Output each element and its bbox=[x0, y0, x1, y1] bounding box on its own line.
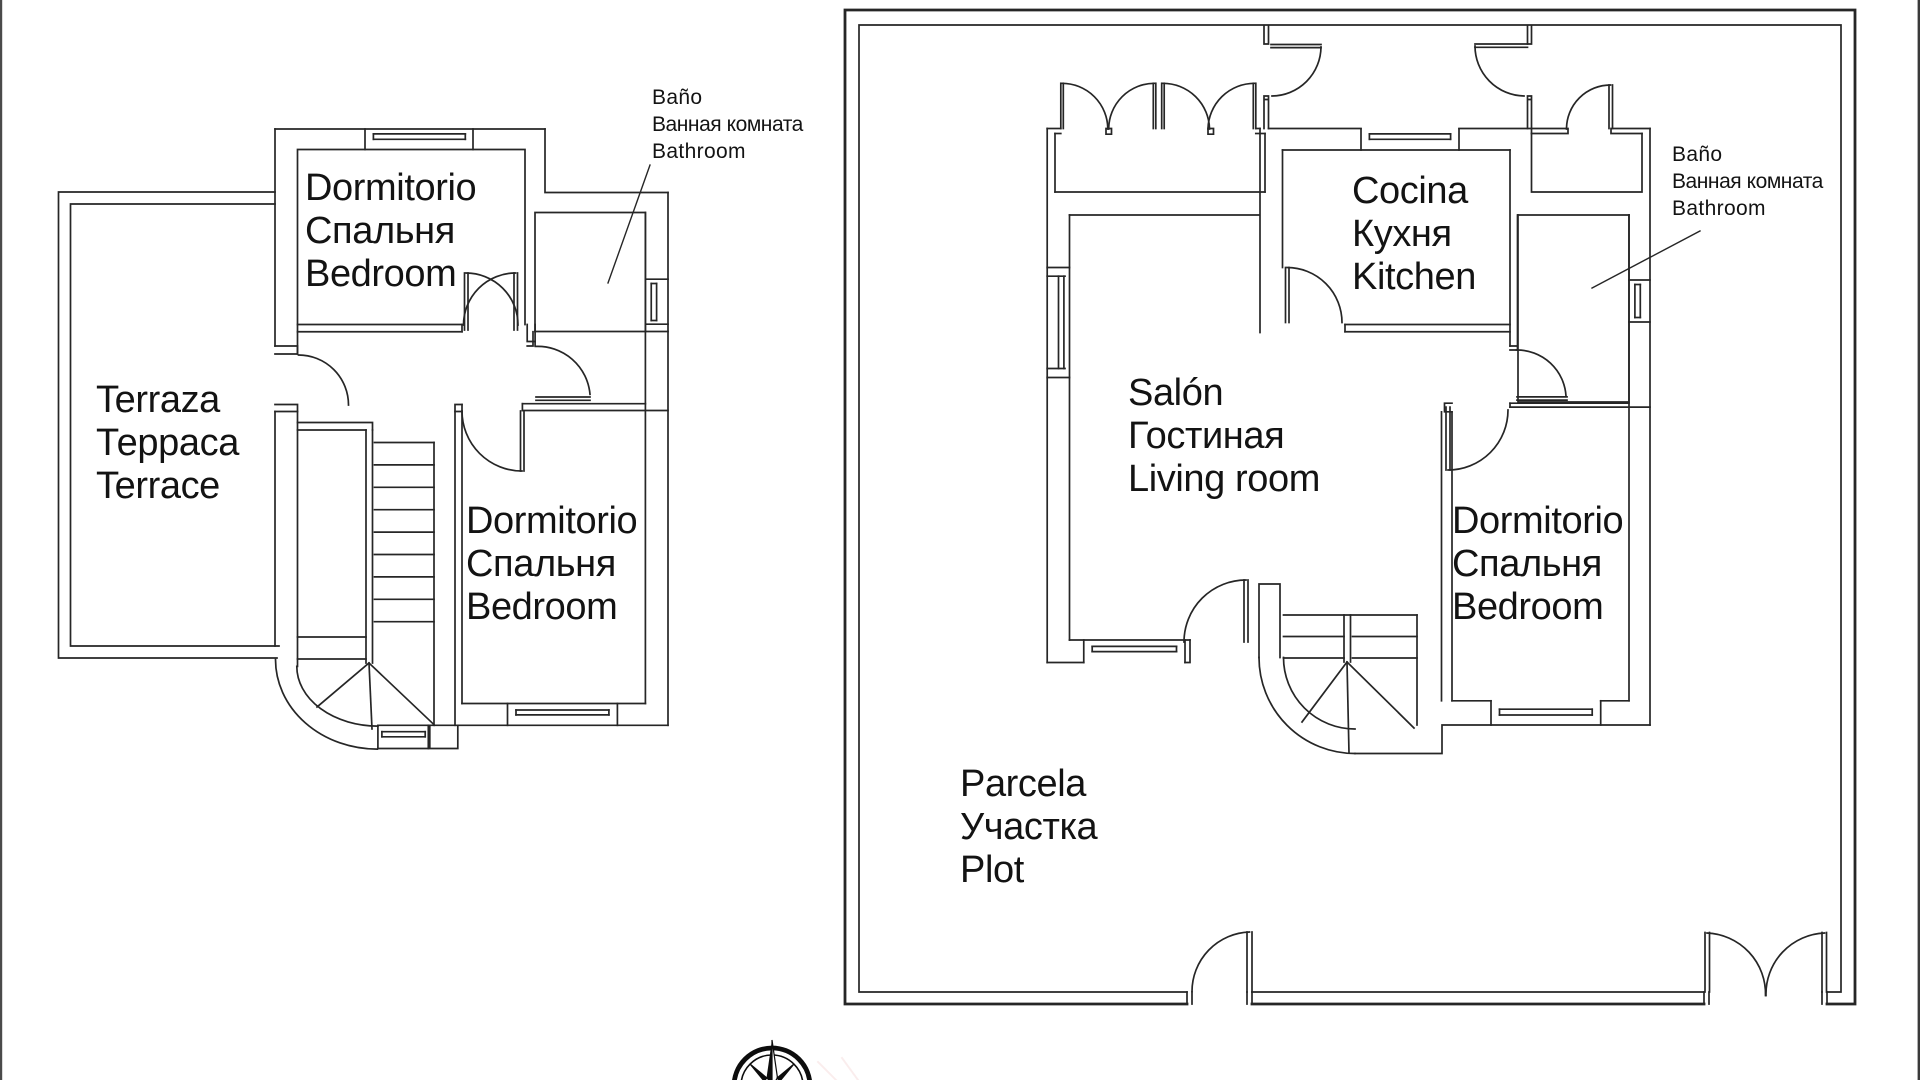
svg-text:Living room: Living room bbox=[1128, 458, 1320, 500]
svg-text:Baño: Baño bbox=[652, 86, 702, 109]
svg-text:Kitchen: Kitchen bbox=[1352, 256, 1476, 298]
svg-text:Bathroom: Bathroom bbox=[652, 140, 746, 163]
svg-text:Ванная комната: Ванная комната bbox=[1672, 170, 1824, 193]
svg-text:Участка: Участка bbox=[960, 806, 1099, 848]
svg-text:Ванная комната: Ванная комната bbox=[652, 113, 804, 136]
svg-text:Bathroom: Bathroom bbox=[1672, 197, 1766, 220]
svg-text:Спальня: Спальня bbox=[1452, 543, 1602, 585]
svg-text:Спальня: Спальня bbox=[466, 543, 616, 585]
svg-text:Baño: Baño bbox=[1672, 143, 1722, 166]
svg-text:Bedroom: Bedroom bbox=[305, 253, 456, 295]
svg-text:Терраса: Терраса bbox=[96, 422, 240, 464]
svg-text:Plot: Plot bbox=[960, 849, 1025, 891]
svg-text:Спальня: Спальня bbox=[305, 210, 455, 252]
svg-text:Cocina: Cocina bbox=[1352, 170, 1469, 212]
svg-text:Dormitorio: Dormitorio bbox=[305, 167, 476, 209]
svg-text:Salón: Salón bbox=[1128, 372, 1223, 414]
svg-text:Bedroom: Bedroom bbox=[466, 586, 617, 628]
svg-text:Terrace: Terrace bbox=[96, 465, 220, 507]
svg-text:Bedroom: Bedroom bbox=[1452, 586, 1603, 628]
svg-text:Parcela: Parcela bbox=[960, 763, 1087, 805]
svg-text:Dormitorio: Dormitorio bbox=[466, 500, 637, 542]
svg-text:Terraza: Terraza bbox=[96, 379, 221, 421]
svg-text:Кухня: Кухня bbox=[1352, 213, 1452, 255]
svg-text:Гостиная: Гостиная bbox=[1128, 415, 1284, 457]
svg-text:Dormitorio: Dormitorio bbox=[1452, 500, 1623, 542]
